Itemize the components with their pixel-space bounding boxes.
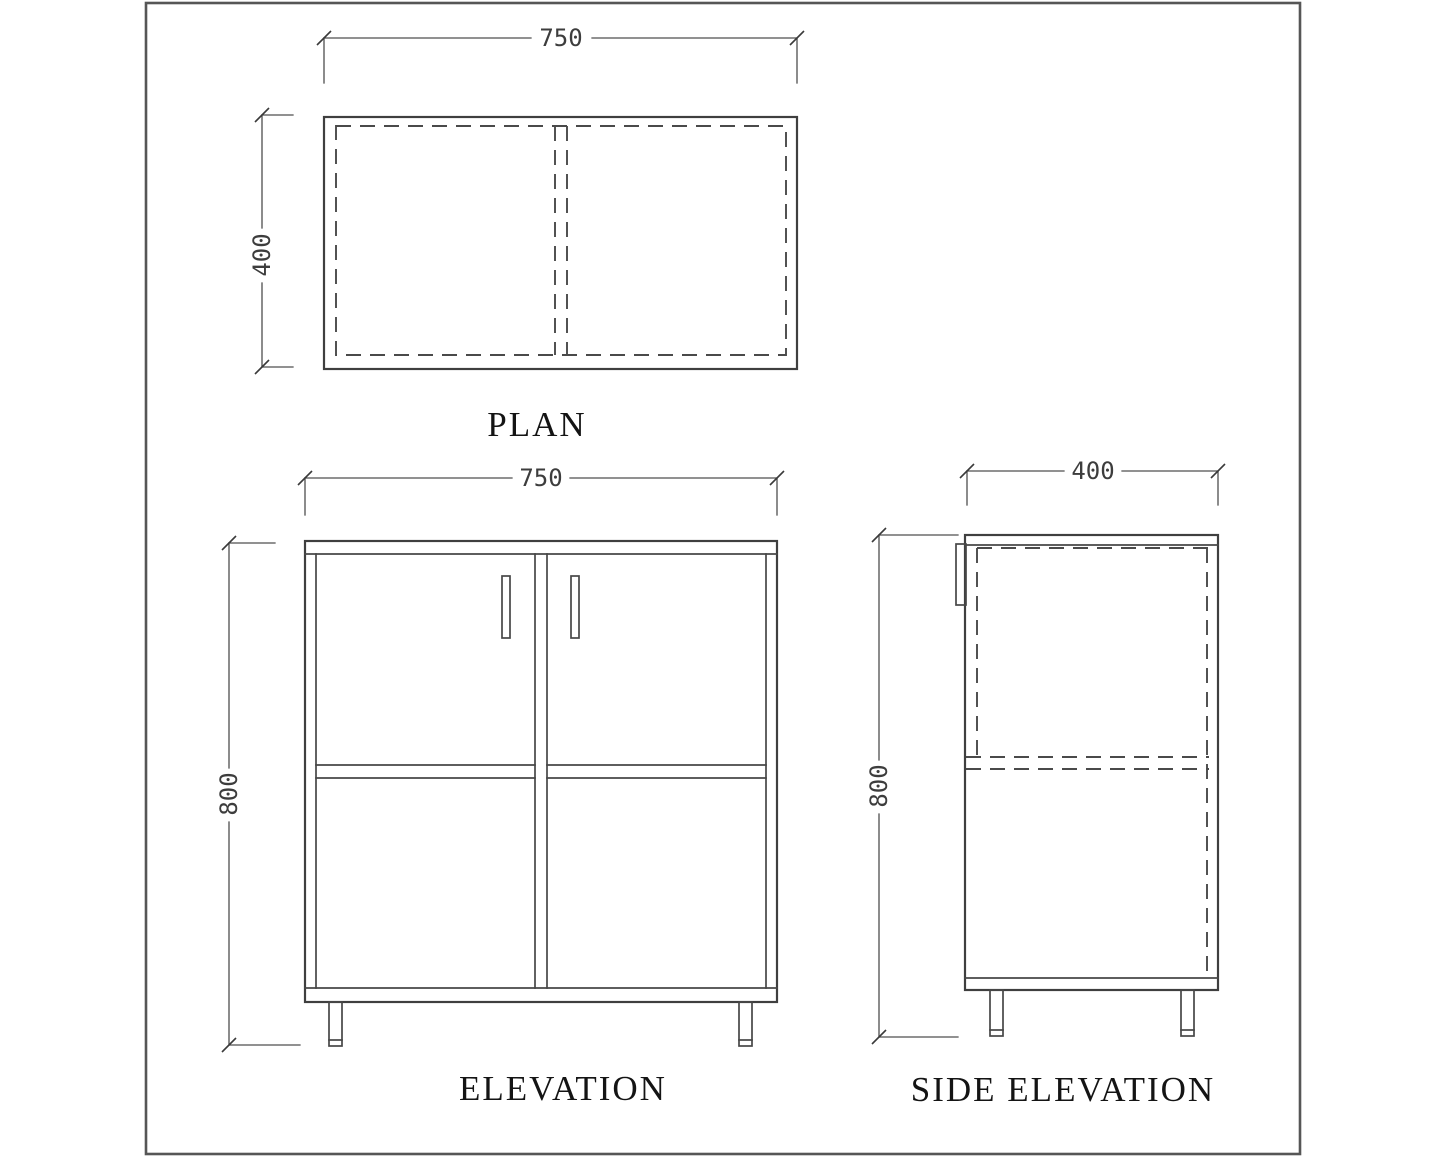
drawing-sheet: 750 400 PLAN (0, 0, 1445, 1156)
elevation-outline (305, 541, 777, 1002)
cad-drawing: 750 400 PLAN (0, 0, 1445, 1156)
elevation-view-label: ELEVATION (459, 1069, 667, 1108)
right-door-handle (571, 576, 579, 638)
elevation-width-dimension-value: 750 (519, 464, 562, 492)
side-height-dimension-value: 800 (865, 764, 893, 807)
plan-width-dimension-value: 750 (539, 24, 582, 52)
elevation-view: 750 800 ELEVATION (215, 464, 784, 1108)
elevation-width-dimension: 750 (298, 464, 784, 515)
elevation-height-dimension-value: 800 (215, 772, 243, 815)
side-elevation-view: 400 800 SIDE ELEVATION (865, 457, 1225, 1109)
plan-view: 750 400 PLAN (248, 24, 804, 444)
side-right-leg (1181, 990, 1194, 1036)
plan-width-dimension: 750 (317, 24, 804, 83)
side-width-dimension: 400 (960, 457, 1225, 505)
side-width-dimension-value: 400 (1071, 457, 1114, 485)
side-elevation-outline (965, 535, 1218, 990)
side-elevation-view-label: SIDE ELEVATION (911, 1070, 1215, 1109)
plan-view-label: PLAN (487, 405, 586, 444)
elevation-height-dimension: 800 (215, 536, 300, 1052)
side-left-leg (990, 990, 1003, 1036)
sheet-border-frame (146, 3, 1300, 1154)
plan-outline (324, 117, 797, 369)
plan-depth-dimension: 400 (248, 108, 293, 374)
left-door-handle (502, 576, 510, 638)
plan-inner-dashed-outline (336, 126, 786, 355)
plan-depth-dimension-value: 400 (248, 233, 276, 276)
side-height-dimension: 800 (865, 528, 958, 1044)
